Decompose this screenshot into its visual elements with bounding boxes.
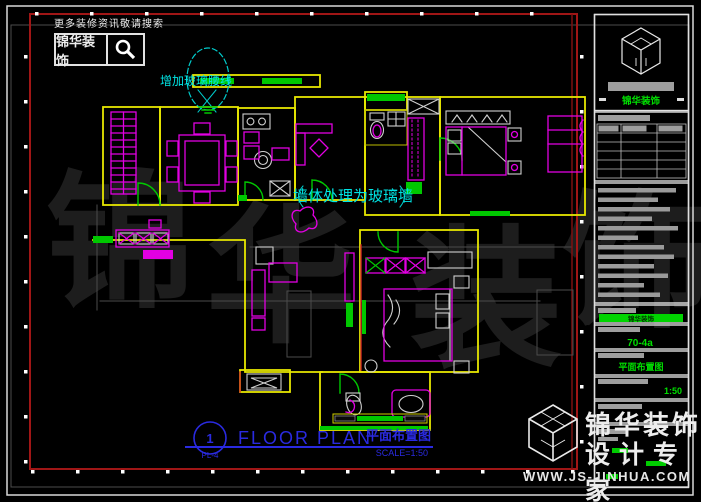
plan-title-cn: 平面布置图 bbox=[366, 428, 431, 443]
footer-brand: 锦华装饰 设计专家 WWW.JS-JINHUA.COM bbox=[523, 401, 701, 496]
construction-lines bbox=[97, 205, 573, 357]
annotation-middle: 墙体处理为玻璃墙 bbox=[293, 188, 413, 205]
pillow bbox=[448, 130, 461, 141]
search-icon[interactable] bbox=[108, 35, 141, 64]
tv-cabinet bbox=[345, 253, 354, 301]
dresser bbox=[428, 252, 472, 268]
field-scale: 1:50 bbox=[664, 386, 682, 396]
armchair bbox=[256, 247, 273, 264]
brand-cube-icon bbox=[523, 403, 583, 467]
plan-title-en: FLOOR PLAN bbox=[238, 428, 372, 448]
dining-table bbox=[179, 135, 225, 191]
cad-sheet: 锦 华 装 饰 bbox=[0, 0, 701, 502]
pillow bbox=[436, 313, 449, 328]
plan-title: 1 PL-4 FLOOR PLAN 平面布置图 SCALE=1:50 bbox=[186, 414, 432, 460]
ceiling-fan bbox=[292, 207, 317, 232]
sofa bbox=[252, 270, 265, 316]
plan-scale: SCALE=1:50 bbox=[376, 448, 428, 458]
search-brand-label: 锦华装饰 bbox=[56, 35, 106, 64]
search-box[interactable]: 锦华装饰 bbox=[54, 33, 145, 66]
kitchen-sink bbox=[255, 152, 272, 169]
shaft bbox=[408, 118, 424, 180]
search-hint: 更多装修资讯敬请搜索 bbox=[54, 15, 164, 30]
rug bbox=[310, 139, 328, 157]
field-drawing: 平面布置图 bbox=[618, 361, 663, 372]
search-widget[interactable]: 更多装修资讯敬请搜索 锦华装饰 bbox=[54, 15, 164, 66]
coffee-table bbox=[269, 263, 297, 282]
floor-plan: 增加玻璃腰线 墙体处理为玻璃墙 1 PL-4 FLOOR PLAN 平面布置图 … bbox=[93, 48, 585, 460]
stool bbox=[365, 360, 377, 372]
corner-sofa bbox=[296, 124, 332, 133]
sheet-number: 1 bbox=[206, 431, 213, 446]
sheet-code: PL-4 bbox=[202, 451, 219, 460]
master-bed bbox=[384, 289, 452, 361]
field-unit: 70-4a bbox=[627, 338, 653, 349]
notes-lines bbox=[598, 188, 678, 297]
field-project: 锦华装饰 bbox=[628, 314, 655, 323]
title-block-brand: 锦华装饰 bbox=[622, 95, 661, 107]
door-arcs bbox=[138, 138, 462, 393]
shower-tray bbox=[399, 396, 423, 413]
brand-url: WWW.JS-JINHUA.COM bbox=[523, 469, 701, 484]
revision-table bbox=[597, 124, 686, 178]
annotation-top: 增加玻璃腰线 bbox=[160, 74, 232, 88]
company-cube-logo bbox=[622, 28, 660, 74]
